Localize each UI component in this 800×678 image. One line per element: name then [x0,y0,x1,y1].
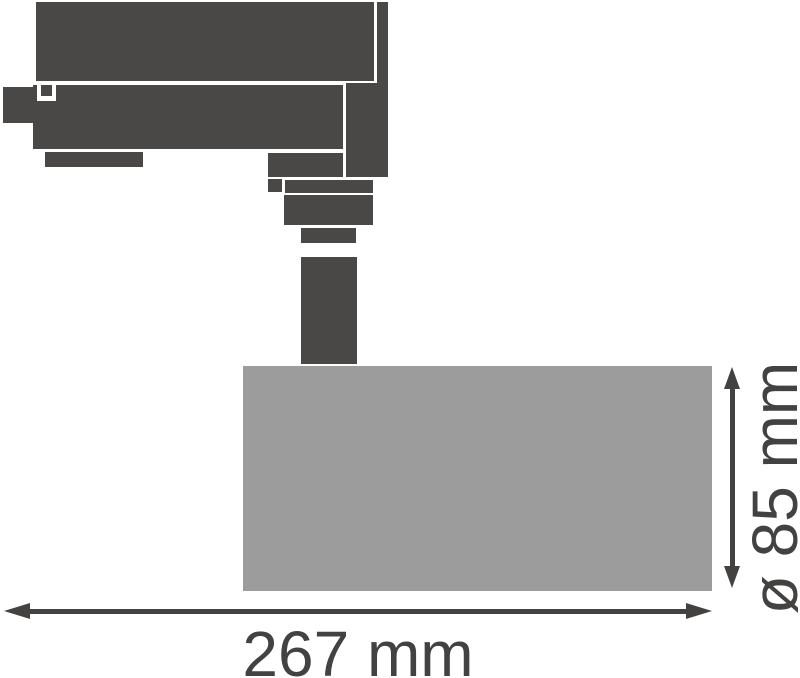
adapter-lower-block [268,153,343,177]
joint-block [284,195,373,225]
diameter-arrowhead-top [724,367,740,389]
joint-swivel-bar [301,228,356,243]
adapter-foot-block [45,152,143,167]
length-arrowhead-right [686,603,712,619]
dimension-drawing: 267 mm ø 85 mm [0,0,800,678]
joint-top-bar [285,180,373,193]
adapter-top-block [36,2,374,81]
lamp-head-body [243,366,712,591]
adapter-release-tab [3,87,37,123]
adapter-right-column-upper [377,2,388,83]
adapter-latch-gap-right [52,84,56,101]
adapter-housing-band [33,85,343,149]
stem [301,257,357,364]
diameter-dimension-line [730,388,735,567]
length-dimension-label: 267 mm [108,622,608,678]
adapter-right-column-lower [346,83,388,177]
diameter-dimension-label: ø 85 mm [743,362,800,614]
length-dimension-line [27,609,687,614]
joint-small-block [268,179,282,192]
diameter-arrowhead-bottom [724,566,740,588]
